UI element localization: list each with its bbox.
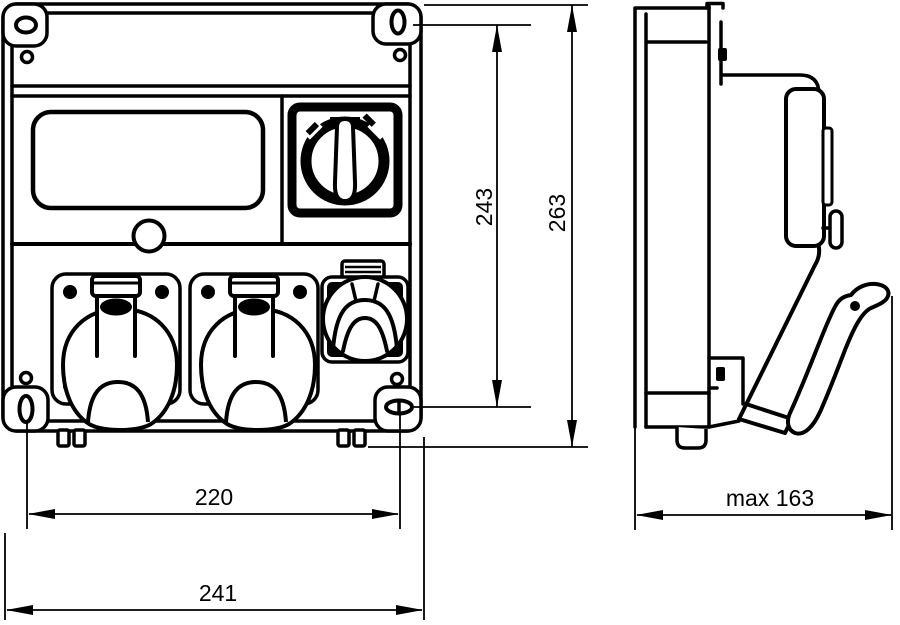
mount-slot-top-left — [16, 18, 36, 33]
cee-socket — [322, 261, 408, 362]
foot-hook — [677, 427, 706, 448]
cover-knob — [134, 221, 165, 252]
front-view — [3, 4, 421, 446]
side-view — [635, 4, 888, 449]
screw-hole — [395, 50, 406, 61]
dim-label-243: 243 — [471, 188, 497, 226]
schuko-socket-middle — [190, 274, 318, 430]
dim-label-263: 263 — [544, 194, 570, 232]
back-plate — [635, 8, 709, 427]
dim-label-220: 220 — [195, 484, 233, 510]
bracket-clip — [716, 367, 725, 381]
drawing-page: 243 263 220 241 max 163 — [0, 0, 900, 625]
body-bottom — [646, 421, 739, 427]
mount-slot-top-right — [392, 11, 405, 34]
schuko-socket-left — [52, 274, 180, 430]
rotary-switch — [292, 107, 398, 213]
dim-label-241: 241 — [199, 580, 237, 606]
mount-slot-bottom-left — [20, 396, 33, 422]
technical-drawing: 243 263 220 241 max 163 — [0, 0, 900, 625]
door-rib — [823, 128, 832, 205]
flap-hinge-pin — [850, 301, 860, 311]
socket-bracket — [709, 358, 743, 404]
switch-handle — [335, 119, 355, 201]
latch-knob — [830, 211, 842, 248]
screw-hole — [392, 374, 403, 385]
screw-hole — [21, 373, 32, 384]
breaker-window — [33, 112, 263, 208]
cee-flap-open — [788, 284, 888, 434]
dim-label-max-depth: max 163 — [726, 485, 814, 511]
screw-hole — [22, 52, 33, 63]
window-door-profile — [786, 89, 824, 246]
